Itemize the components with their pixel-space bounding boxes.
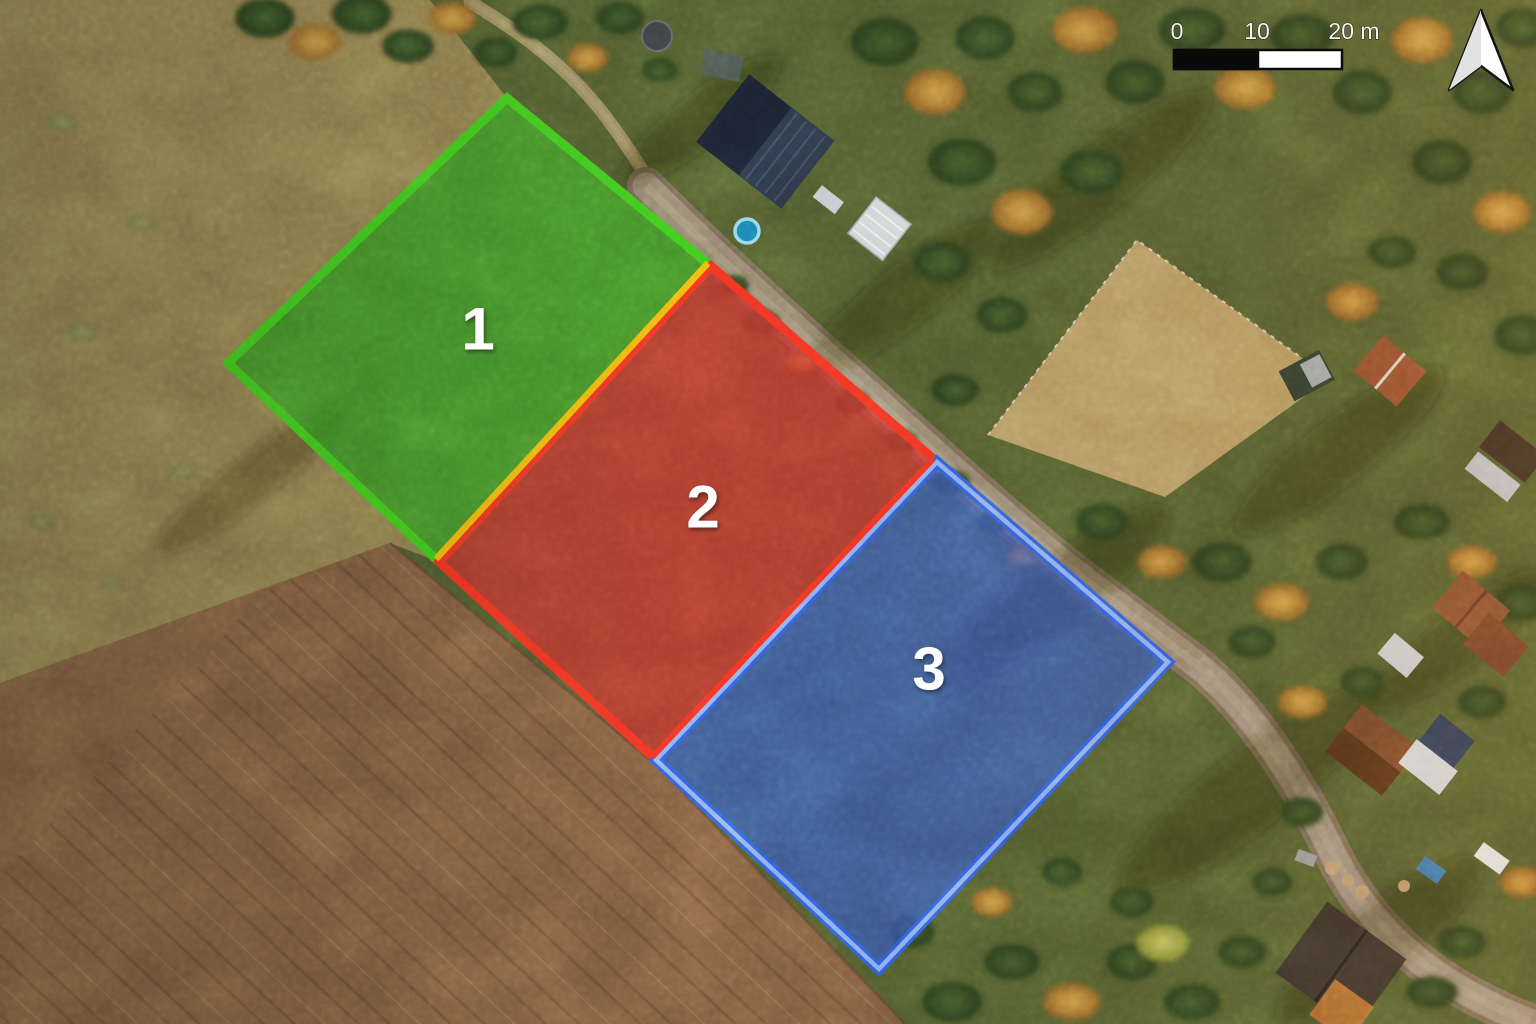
parcel-3-label: 3	[912, 636, 945, 703]
scale-tick-10: 10	[1244, 18, 1270, 44]
parcel-2-label: 2	[686, 474, 719, 541]
scale-bar-black-segment	[1174, 50, 1258, 69]
scale-tick-0: 0	[1171, 18, 1184, 44]
aerial-map: 1 2 3 0 10 20 m	[0, 0, 1536, 1024]
lighting-overlay	[0, 0, 1536, 1024]
parcel-1-label: 1	[461, 296, 494, 363]
scale-tick-20m: 20 m	[1328, 18, 1379, 44]
aerial-map-stage: 1 2 3 0 10 20 m	[0, 0, 1536, 1024]
